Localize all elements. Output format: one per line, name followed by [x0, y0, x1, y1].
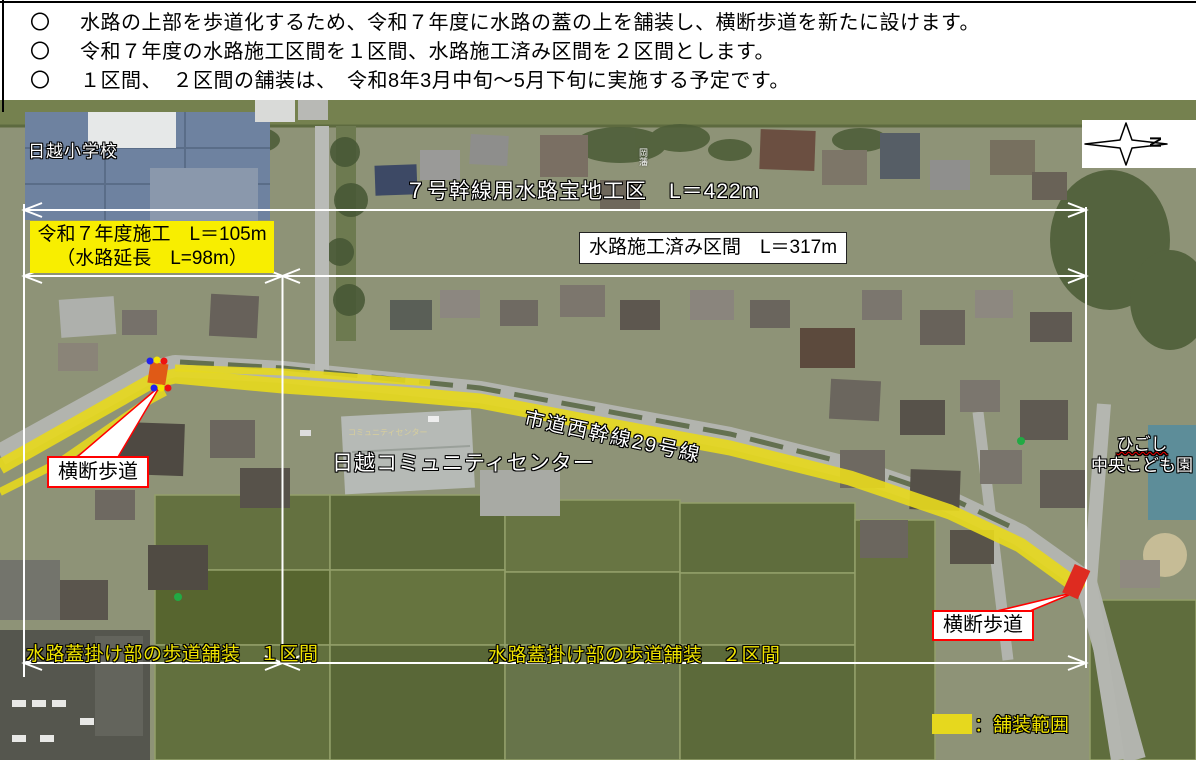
dimension-lines [24, 203, 1086, 677]
bullet-2: 〇 令和７年度の水路施工区間を１区間、水路施工済み区間を２区間とします。 [30, 38, 980, 67]
header-note-panel: 〇 水路の上部を歩道化するため、令和７年度に水路の蓋の上を舗装し、横断歩道を新た… [0, 0, 1196, 100]
kodomoen-line2: 中央こども園 [1086, 455, 1196, 476]
section2-paving-label: 水路蓋掛け部の歩道舗装 ２区間 [488, 640, 781, 667]
bullet-2-text: 令和７年度の水路施工区間を１区間、水路施工済み区間を２区間とします。 [80, 38, 775, 67]
compass-north-letter: N [1145, 136, 1163, 148]
bullet-1-text: 水路の上部を歩道化するため、令和７年度に水路の蓋の上を舗装し、横断歩道を新たに設… [80, 9, 980, 38]
page-top-border [0, 1, 1196, 3]
completed-section-box: 水路施工済み区間 L＝317m [579, 232, 847, 264]
header-bullet-list: 〇 水路の上部を歩道化するため、令和７年度に水路の蓋の上を舗装し、横断歩道を新た… [30, 9, 980, 96]
fy7-line1: 令和７年度施工 L＝105m [30, 223, 274, 247]
paving-legend-swatch [932, 714, 972, 734]
crosswalk-label-right: 横断歩道 [932, 610, 1034, 641]
bullet-3: 〇 １区間、 ２区間の舗装は、 令和8年3月中旬～5月下旬に実施する予定です。 [30, 67, 980, 96]
community-center-label: 日越コミュニティセンター [332, 447, 595, 477]
fy7-line2: （水路延長 L=98m） [30, 247, 274, 271]
crosswalk-label-left: 横断歩道 [47, 456, 149, 488]
fy7-construction-box: 令和７年度施工 L＝105m （水路延長 L=98m） [30, 221, 274, 273]
annotated-aerial-map-page: 日越小学校 岡藩 ７号幹線用水路宝地工区 L＝422m 令和７年度施工 L＝10… [0, 0, 1196, 760]
roof-label: コミュニティセンター [348, 427, 428, 438]
bullet-3-text: １区間、 ２区間の舗装は、 令和8年3月中旬～5月下旬に実施する予定です。 [80, 67, 790, 96]
kodomoen-line1: ひごし [1117, 435, 1168, 454]
bullet-1: 〇 水路の上部を歩道化するため、令和７年度に水路の蓋の上を舗装し、横断歩道を新た… [30, 9, 980, 38]
crosswalk-marker-left [147, 362, 168, 386]
bullet-3-marker: 〇 [30, 67, 56, 96]
callout-wedge-right [997, 592, 1076, 611]
trunk-waterway-section-label: ７号幹線用水路宝地工区 L＝422m [405, 175, 760, 205]
compass-box [1082, 120, 1196, 168]
bullet-2-marker: 〇 [30, 38, 56, 67]
bullet-1-marker: 〇 [30, 9, 56, 38]
school-label: 日越小学校 [28, 137, 118, 162]
paving-legend-label: ：舗装範囲 [974, 710, 1069, 737]
section1-paving-label: 水路蓋掛け部の歩道舗装 １区間 [26, 639, 319, 666]
kodomoen-label: ひごし 中央こども園 [1086, 434, 1196, 476]
page-left-border [2, 0, 4, 112]
small-place-label: 岡藩 [637, 148, 650, 166]
